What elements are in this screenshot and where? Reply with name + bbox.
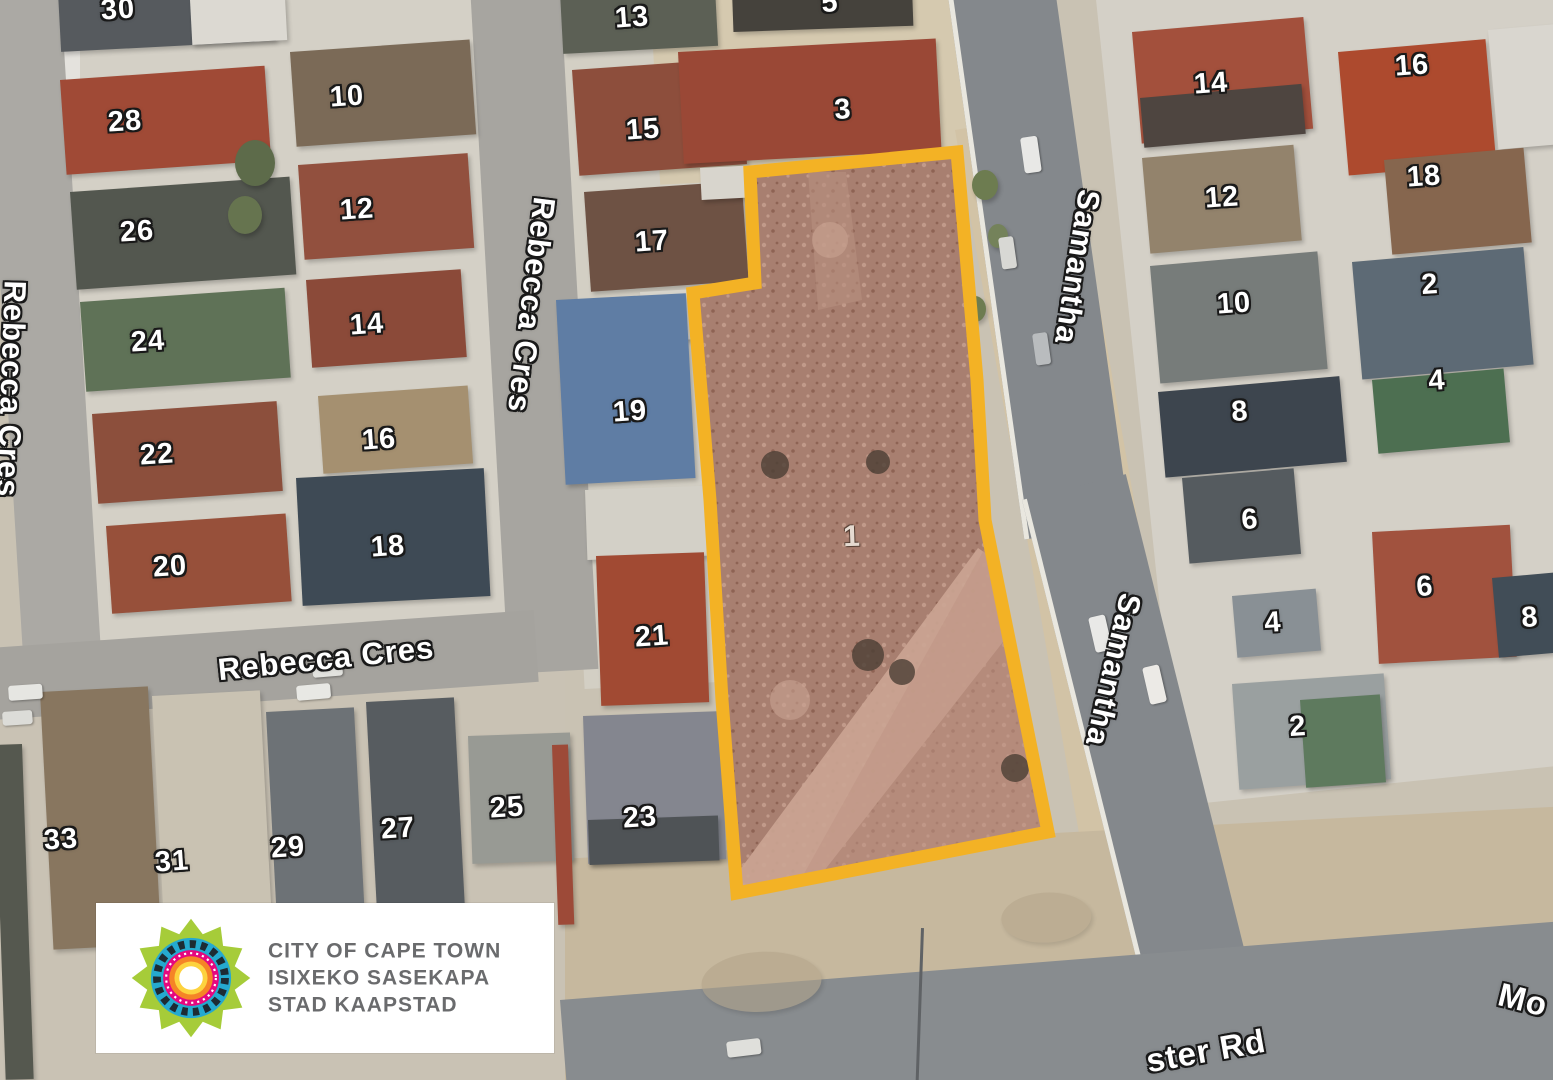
building (1158, 376, 1347, 478)
house-number: 14 (349, 307, 385, 342)
house-number: 4 (1263, 606, 1282, 640)
building (585, 486, 707, 560)
map-viewport: Rebecca CresRebecca CresRebecca CresSama… (0, 0, 1553, 1080)
house-number: 15 (625, 112, 661, 147)
vehicle (8, 684, 43, 701)
building (70, 177, 296, 290)
logo-line-1: CITY OF CAPE TOWN (268, 938, 501, 965)
building (190, 0, 287, 45)
logo-line-3: STAD KAAPSTAD (268, 992, 501, 1019)
house-number: 31 (154, 844, 190, 879)
house-number: 10 (1216, 286, 1252, 321)
house-number: 8 (1520, 601, 1539, 635)
building (106, 513, 292, 613)
house-number: 19 (612, 394, 648, 429)
house-number: 10 (329, 79, 365, 114)
house-number: 24 (130, 324, 166, 359)
house-number: 18 (370, 529, 406, 564)
house-number: 16 (1394, 48, 1430, 83)
house-number: 17 (634, 224, 670, 259)
vehicle (296, 683, 331, 701)
building (556, 293, 696, 485)
building (1352, 247, 1534, 380)
logo-line-2: ISIXEKO SASEKAPA (268, 965, 501, 992)
city-of-cape-town-logo-icon (130, 917, 252, 1039)
house-number: 2 (1288, 710, 1307, 744)
building (1488, 24, 1553, 149)
house-number: 14 (1193, 66, 1229, 101)
house-number: 12 (339, 192, 375, 227)
logo-sunburst (130, 917, 252, 1039)
house-number: 2 (1420, 268, 1439, 302)
building (80, 288, 291, 392)
house-number: 13 (614, 0, 650, 35)
house-number: 21 (634, 619, 670, 654)
house-number: 33 (43, 822, 79, 857)
house-number: 5 (820, 0, 839, 20)
house-number: 29 (270, 830, 306, 865)
building (228, 196, 262, 234)
parcel-number: 1 (843, 520, 862, 555)
building (298, 153, 474, 260)
building (964, 296, 986, 322)
house-number: 25 (489, 790, 525, 825)
house-number: 4 (1427, 364, 1446, 398)
house-number: 23 (622, 800, 658, 835)
building (318, 386, 473, 474)
house-number: 8 (1230, 395, 1249, 429)
building (92, 401, 283, 504)
building (972, 170, 998, 200)
building (290, 39, 476, 146)
house-number: 22 (139, 437, 175, 472)
house-number: 12 (1204, 180, 1240, 215)
building (678, 38, 942, 163)
building (1300, 694, 1386, 787)
vehicle (2, 710, 33, 726)
house-number: 18 (1406, 159, 1442, 194)
house-number: 6 (1415, 570, 1434, 604)
house-number: 16 (361, 422, 397, 457)
house-number: 28 (107, 104, 143, 139)
building (306, 269, 467, 368)
house-number: 30 (100, 0, 136, 28)
house-number: 6 (1240, 503, 1259, 537)
city-logo-text: CITY OF CAPE TOWN ISIXEKO SASEKAPA STAD … (268, 938, 501, 1019)
house-number: 26 (119, 214, 155, 249)
road-surface (945, 0, 1130, 539)
house-number: 20 (152, 549, 188, 584)
house-number: 3 (833, 93, 852, 127)
building (235, 140, 275, 186)
house-number: 27 (380, 811, 416, 846)
city-logo-card: CITY OF CAPE TOWN ISIXEKO SASEKAPA STAD … (96, 903, 554, 1053)
